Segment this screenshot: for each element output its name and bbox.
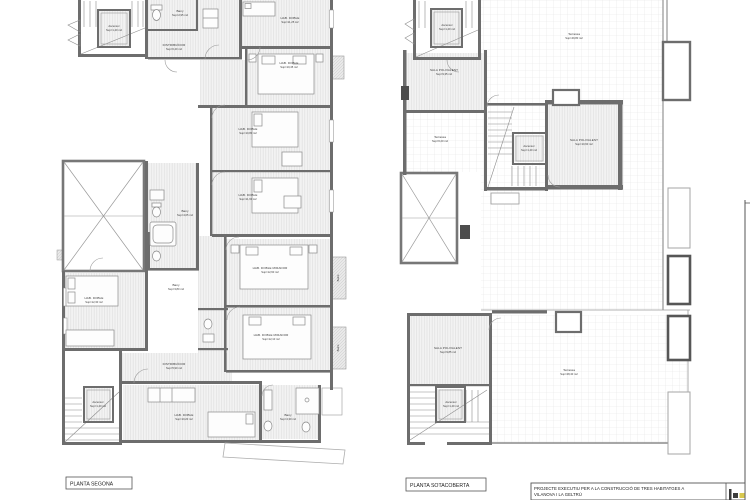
sheet-frame [745, 200, 750, 500]
svg-text:Sup=28,40 m2: Sup=28,40 m2 [560, 372, 578, 376]
label-hab-mid2: HAB. DOBLE [238, 193, 257, 197]
svg-text:Sup=2,95 m2: Sup=2,95 m2 [172, 13, 189, 17]
label-sala-top: SALA POLIVALENT [430, 68, 458, 72]
caption-planta-segona: PLANTA SEGONA [70, 482, 114, 488]
label-terrassa-gran: Terrassa [568, 32, 580, 36]
svg-text:Sup=4,05 m2: Sup=4,05 m2 [177, 213, 194, 217]
svg-text:Sup=49,80 m2: Sup=49,80 m2 [565, 36, 583, 40]
label-sala-mid: SALA POLIVALENT [570, 138, 598, 142]
svg-text:Sup=12,30 m2: Sup=12,30 m2 [85, 300, 103, 304]
svg-text:Sup=1,40 m2: Sup=1,40 m2 [90, 404, 107, 408]
label-balco2: Balcó [336, 344, 340, 351]
label-ascensor-baix: Ascensor [445, 400, 456, 404]
label-distribuidor-baix: DISTRIBUÏDOR [163, 362, 186, 366]
svg-text:Sup=9,35 m2: Sup=9,35 m2 [436, 72, 453, 76]
title-block-line1: PROJECTE EXECUTIU PER A LA CONSTRUCCIÓ D… [534, 486, 684, 491]
label-bany-mid: Bany [181, 209, 189, 213]
patio-shaft [63, 161, 144, 271]
label-hab-mid1: HAB. DOBLE [238, 127, 257, 131]
svg-text:Sup=11,25 m2: Sup=11,25 m2 [281, 20, 299, 24]
label-distribuidor-top: DISTRIBUÏDOR [163, 43, 186, 47]
patio-shaft [401, 173, 457, 263]
label-terrassa-esq: Terrassa [434, 135, 446, 139]
svg-text:Sup=4,30 m2: Sup=4,30 m2 [280, 417, 297, 421]
svg-text:Sup=5,90 m2: Sup=5,90 m2 [166, 366, 183, 370]
title-block-line2: VILANOVA I LA GELTRÚ [534, 492, 582, 497]
label-ascensor-top: Ascensor [108, 24, 119, 28]
svg-text:Sup=9,85 m2: Sup=9,85 m2 [440, 350, 457, 354]
label-sala-baix: SALA POLIVALENT [434, 346, 462, 350]
svg-text:Sup=6,20 m2: Sup=6,20 m2 [432, 139, 449, 143]
label-hab-baix: HAB. DOBLE [174, 413, 193, 417]
label-balco1: Balcó [336, 274, 340, 281]
svg-text:Sup=1,40 m2: Sup=1,40 m2 [439, 27, 456, 31]
bottom-balcony-outline [223, 443, 345, 464]
label-bany-esquerra: Bany [172, 283, 180, 287]
label-hab-mid-dreta: HAB. DOBLE [279, 61, 298, 65]
svg-text:Sup=1,40 m2: Sup=1,40 m2 [106, 28, 123, 32]
caption-planta-sotacoberta: PLANTA SOTACOBERTA [410, 483, 470, 489]
captions: PLANTA SEGONA PLANTA SOTACOBERTA [66, 477, 486, 491]
drawing-sheet: Ascensor Sup=1,40 m2 Bany Sup=2,95 m2 HA… [0, 0, 750, 500]
svg-text:Sup=11,60 m2: Sup=11,60 m2 [239, 197, 257, 201]
label-ascensor-top: Ascensor [441, 23, 452, 27]
svg-text:Sup=6,40 m2: Sup=6,40 m2 [166, 47, 183, 51]
svg-text:Sup=3,80 m2: Sup=3,80 m2 [168, 287, 185, 291]
svg-text:Sup=12,60 m2: Sup=12,60 m2 [261, 270, 279, 274]
label-hab-mirador1: HAB. DOBLE MIRADOR [253, 266, 289, 270]
plan-segona: Ascensor Sup=1,40 m2 Bany Sup=2,95 m2 HA… [57, 0, 346, 464]
label-terrassa-baix: Terrassa [563, 368, 575, 372]
svg-text:Sup=10,45 m2: Sup=10,45 m2 [280, 65, 298, 69]
floorplan-drawing: Ascensor Sup=1,40 m2 Bany Sup=2,95 m2 HA… [0, 0, 750, 500]
svg-text:Sup=12,10 m2: Sup=12,10 m2 [262, 337, 280, 341]
label-bany-top: Bany [176, 9, 184, 13]
svg-text:Sup=1,40 m2: Sup=1,40 m2 [443, 404, 460, 408]
label-bany-baix: Bany [284, 413, 292, 417]
label-ascensor-mid: Ascensor [523, 144, 534, 148]
label-hab-top: HAB. DOBLE [280, 16, 299, 20]
label-hab-mirador2: HAB. DOBLE MIRADOR [254, 333, 290, 337]
label-ascensor-baix: Ascensor [92, 400, 103, 404]
title-block: PROJECTE EXECUTIU PER A LA CONSTRUCCIÓ D… [531, 483, 745, 500]
plan-sotacoberta: Ascensor Sup=1,40 m2 SALA POLIVALENT Sup… [401, 0, 690, 454]
svg-text:Sup=10,20 m2: Sup=10,20 m2 [175, 417, 193, 421]
svg-text:Sup=1,40 m2: Sup=1,40 m2 [521, 148, 538, 152]
svg-text:Sup=10,80 m2: Sup=10,80 m2 [239, 131, 257, 135]
svg-text:Sup=10,60 m2: Sup=10,60 m2 [575, 142, 593, 146]
label-hab-esquerra: HAB. DOBLE [84, 296, 103, 300]
